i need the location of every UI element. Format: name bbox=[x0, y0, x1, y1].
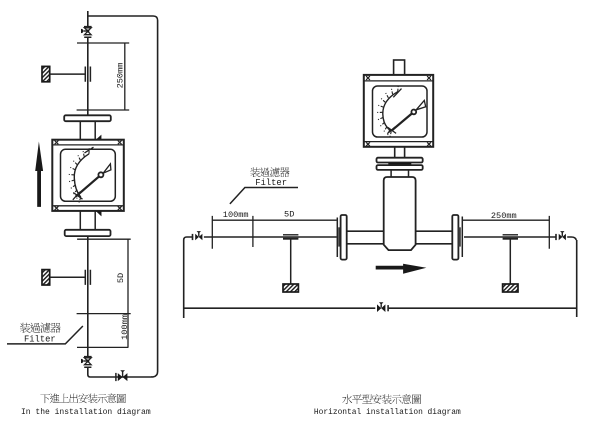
svg-text:100mm: 100mm bbox=[120, 314, 130, 340]
svg-text:Filter: Filter bbox=[24, 335, 56, 345]
svg-text:Horizontal installation diagra: Horizontal installation diagram bbox=[314, 408, 461, 417]
svg-text:5D: 5D bbox=[284, 210, 294, 220]
svg-text:In the installation diagram: In the installation diagram bbox=[21, 408, 151, 417]
svg-text:Filter: Filter bbox=[255, 178, 287, 188]
svg-text:100mm: 100mm bbox=[223, 210, 249, 220]
svg-text:250mm: 250mm bbox=[491, 211, 517, 221]
svg-text:5D: 5D bbox=[116, 273, 126, 283]
svg-text:250mm: 250mm bbox=[116, 63, 126, 89]
